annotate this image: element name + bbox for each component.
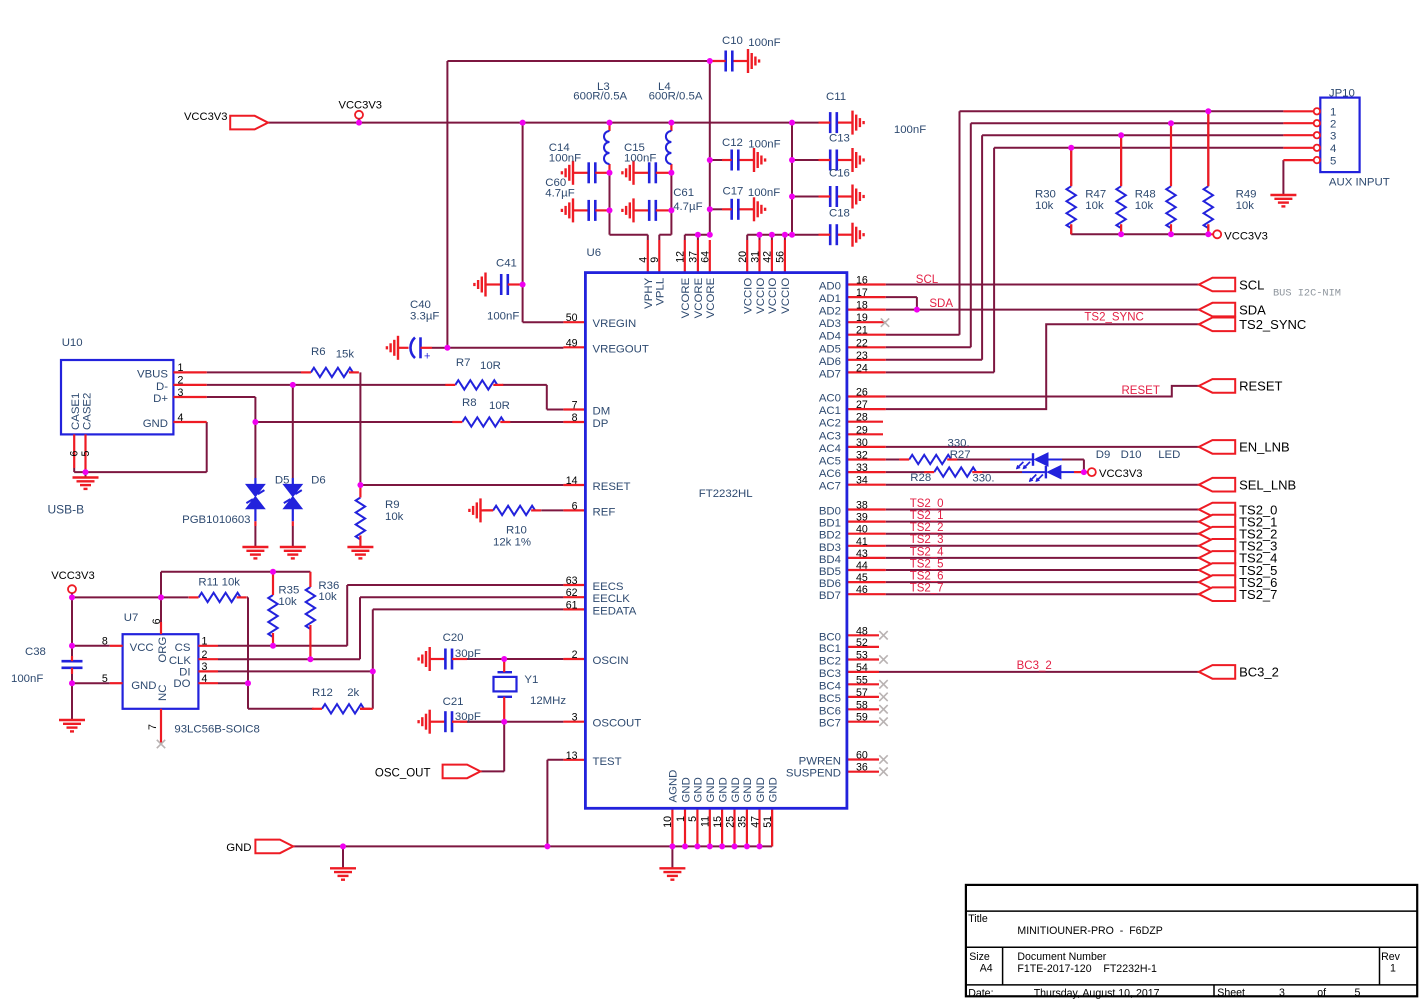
svg-text:D+: D+	[153, 393, 168, 405]
svg-text:D5: D5	[275, 475, 290, 487]
svg-text:OSCIN: OSCIN	[593, 655, 629, 667]
svg-text:36: 36	[856, 762, 868, 774]
svg-text:5: 5	[80, 451, 92, 457]
svg-text:5: 5	[1330, 155, 1336, 167]
svg-text:10k: 10k	[278, 596, 297, 608]
svg-text:GND: GND	[143, 418, 168, 430]
svg-text:100nF: 100nF	[11, 673, 43, 685]
svg-text:VPLL: VPLL	[655, 278, 667, 306]
svg-text:BD1: BD1	[819, 518, 841, 530]
svg-text:29: 29	[856, 424, 868, 436]
svg-text:SUSPEND: SUSPEND	[786, 768, 841, 780]
svg-text:41: 41	[856, 536, 868, 548]
svg-text:VCC3V3: VCC3V3	[51, 570, 95, 582]
svg-text:AC3: AC3	[819, 430, 841, 442]
svg-text:63: 63	[566, 575, 578, 587]
svg-text:DP: DP	[593, 418, 609, 430]
svg-text:BC3_2: BC3_2	[1017, 660, 1052, 672]
svg-text:C11: C11	[826, 91, 846, 103]
svg-text:2k: 2k	[347, 687, 359, 699]
svg-text:1: 1	[178, 362, 184, 374]
svg-text:R30: R30	[1035, 188, 1056, 200]
svg-text:BC5: BC5	[819, 693, 841, 705]
svg-text:39: 39	[856, 512, 868, 524]
svg-text:D6: D6	[311, 475, 326, 487]
svg-text:10: 10	[662, 816, 674, 828]
svg-text:34: 34	[856, 475, 868, 487]
svg-text:VCCIO: VCCIO	[780, 278, 792, 314]
svg-text:AD7: AD7	[819, 368, 841, 380]
svg-text:24: 24	[856, 362, 868, 374]
svg-text:16: 16	[856, 275, 868, 287]
svg-text:61: 61	[566, 599, 578, 611]
svg-text:VCORE: VCORE	[680, 277, 692, 318]
svg-text:AD2: AD2	[819, 306, 841, 318]
svg-text:NC: NC	[157, 685, 169, 701]
svg-text:R6: R6	[311, 346, 326, 358]
svg-text:BC4: BC4	[819, 680, 841, 692]
svg-text:AC5: AC5	[819, 456, 841, 468]
svg-text:AD0: AD0	[819, 281, 841, 293]
svg-text:32: 32	[856, 450, 868, 462]
svg-text:BUS I2C-NIM: BUS I2C-NIM	[1273, 287, 1341, 299]
svg-text:REF: REF	[593, 506, 616, 518]
svg-text:AD6: AD6	[819, 356, 841, 368]
svg-text:26: 26	[856, 387, 868, 399]
svg-text:37: 37	[688, 251, 700, 263]
svg-text:3: 3	[572, 712, 578, 724]
svg-text:4.7µF: 4.7µF	[545, 188, 574, 200]
svg-text:ORG: ORG	[157, 637, 169, 663]
svg-text:VCC3V3: VCC3V3	[184, 111, 228, 123]
svg-text:BD7: BD7	[819, 590, 841, 602]
svg-text:AC7: AC7	[819, 481, 841, 493]
svg-text:50: 50	[566, 312, 578, 324]
svg-text:U7: U7	[124, 612, 139, 624]
svg-text:VCORE: VCORE	[693, 277, 705, 318]
svg-text:TS2_4: TS2_4	[910, 546, 944, 558]
svg-text:12MHz: 12MHz	[530, 695, 566, 707]
svg-text:18: 18	[856, 300, 868, 312]
svg-text:Document Number: Document Number	[1017, 951, 1106, 963]
svg-text:BD2: BD2	[819, 530, 841, 542]
svg-text:10k: 10k	[1236, 200, 1255, 212]
svg-text:SDA: SDA	[929, 298, 953, 310]
svg-text:PGB1010603: PGB1010603	[182, 514, 250, 526]
svg-text:5: 5	[1355, 987, 1361, 999]
svg-text:AUX INPUT: AUX INPUT	[1329, 176, 1390, 188]
svg-text:10k: 10k	[1135, 200, 1154, 212]
svg-text:Size: Size	[969, 951, 990, 963]
svg-text:TS2_0: TS2_0	[910, 498, 944, 510]
svg-text:TS2_SYNC: TS2_SYNC	[1084, 312, 1143, 324]
svg-text:17: 17	[856, 287, 868, 299]
svg-text:VREGIN: VREGIN	[593, 318, 637, 330]
svg-text:GND: GND	[717, 777, 729, 802]
svg-text:600R/0.5A: 600R/0.5A	[649, 91, 703, 103]
svg-text:40: 40	[856, 524, 868, 536]
svg-text:FT2232HL: FT2232HL	[699, 488, 753, 500]
svg-text:AC4: AC4	[819, 443, 841, 455]
svg-text:100nF: 100nF	[549, 153, 581, 165]
svg-text:AD5: AD5	[819, 343, 841, 355]
svg-text:TS2_7: TS2_7	[1239, 587, 1277, 602]
svg-text:64: 64	[700, 251, 712, 263]
svg-text:F1TE-2017-120 FT2232H-1: F1TE-2017-120 FT2232H-1	[1017, 963, 1157, 975]
svg-text:10k: 10k	[1085, 200, 1104, 212]
svg-text:AC0: AC0	[819, 393, 841, 405]
svg-text:25: 25	[724, 816, 736, 828]
svg-text:AD1: AD1	[819, 293, 841, 305]
svg-text:USB-B: USB-B	[48, 503, 85, 517]
svg-text:VREGOUT: VREGOUT	[593, 343, 649, 355]
svg-text:100nF: 100nF	[748, 187, 780, 199]
svg-text:30: 30	[856, 437, 868, 449]
svg-text:43: 43	[856, 548, 868, 560]
svg-text:10k: 10k	[318, 591, 337, 603]
svg-text:EN_LNB: EN_LNB	[1239, 440, 1290, 455]
svg-text:CASE1: CASE1	[70, 393, 82, 430]
svg-text:23: 23	[856, 350, 868, 362]
svg-text:EECLK: EECLK	[593, 593, 631, 605]
svg-text:19: 19	[856, 312, 868, 324]
svg-text:RESET: RESET	[593, 481, 631, 493]
svg-text:1: 1	[202, 635, 208, 647]
svg-text:U10: U10	[62, 337, 83, 349]
svg-text:TS2_5: TS2_5	[910, 558, 944, 570]
svg-text:15k: 15k	[336, 348, 355, 360]
svg-text:D9: D9	[1096, 449, 1111, 461]
svg-text:3: 3	[202, 661, 208, 673]
svg-text:AD4: AD4	[819, 331, 841, 343]
svg-text:48: 48	[856, 625, 868, 637]
svg-text:21: 21	[856, 325, 868, 337]
svg-text:8: 8	[572, 412, 578, 424]
svg-text:60: 60	[856, 750, 868, 762]
svg-text:10k: 10k	[1035, 200, 1054, 212]
svg-text:C18: C18	[829, 208, 850, 220]
svg-text:56: 56	[775, 251, 787, 263]
svg-text:100nF: 100nF	[624, 153, 656, 165]
svg-text:2: 2	[572, 649, 578, 661]
svg-text:CASE2: CASE2	[81, 393, 93, 430]
svg-text:59: 59	[856, 712, 868, 724]
svg-text:C12: C12	[722, 137, 743, 149]
svg-text:5: 5	[687, 816, 699, 822]
svg-text:2: 2	[202, 649, 208, 661]
svg-text:2: 2	[1330, 119, 1336, 131]
svg-text:GND: GND	[693, 777, 705, 802]
svg-text:6: 6	[151, 618, 163, 624]
svg-text:3: 3	[1330, 131, 1336, 143]
svg-text:42: 42	[762, 251, 774, 263]
svg-text:C38: C38	[25, 646, 46, 658]
svg-text:R47: R47	[1085, 188, 1106, 200]
svg-text:TS2_7: TS2_7	[910, 583, 944, 595]
svg-text:51: 51	[762, 816, 774, 828]
svg-text:GND: GND	[226, 842, 251, 854]
svg-text:BC6: BC6	[819, 705, 841, 717]
svg-text:600R/0.5A: 600R/0.5A	[573, 91, 627, 103]
svg-text:EECS: EECS	[593, 581, 624, 593]
svg-text:LED: LED	[1158, 449, 1180, 461]
svg-text:VCCIO: VCCIO	[755, 278, 767, 314]
svg-text:9: 9	[649, 257, 661, 263]
svg-text:DO: DO	[173, 678, 190, 690]
svg-text:30pF: 30pF	[455, 711, 481, 723]
svg-text:DM: DM	[593, 406, 611, 418]
svg-text:GND: GND	[767, 777, 779, 802]
svg-text:VCCIO: VCCIO	[743, 278, 755, 314]
svg-text:C41: C41	[496, 258, 517, 270]
svg-text:C13: C13	[829, 133, 850, 145]
svg-text:100nF: 100nF	[894, 124, 926, 136]
svg-text:VPHY: VPHY	[643, 277, 655, 308]
svg-text:13: 13	[566, 750, 578, 762]
svg-text:RESET: RESET	[1122, 385, 1160, 397]
svg-text:4: 4	[638, 257, 650, 263]
svg-text:PWREN: PWREN	[799, 756, 841, 768]
svg-text:AC2: AC2	[819, 418, 841, 430]
svg-text:R12: R12	[312, 687, 333, 699]
svg-text:45: 45	[856, 572, 868, 584]
svg-text:GND: GND	[131, 680, 156, 692]
svg-text:R35: R35	[278, 585, 299, 597]
svg-text:7: 7	[572, 400, 578, 412]
svg-text:TS2_SYNC: TS2_SYNC	[1239, 317, 1306, 332]
svg-text:BC3_2: BC3_2	[1239, 665, 1279, 680]
svg-text:1: 1	[1330, 107, 1336, 119]
svg-text:12: 12	[675, 251, 687, 263]
svg-text:100nF: 100nF	[748, 139, 780, 151]
svg-text:15: 15	[712, 816, 724, 828]
svg-text:11: 11	[700, 816, 712, 827]
svg-text:VCC3V3: VCC3V3	[1224, 230, 1268, 242]
svg-text:BC0: BC0	[819, 631, 841, 643]
svg-text:BC7: BC7	[819, 718, 841, 730]
svg-text:C20: C20	[443, 632, 464, 644]
svg-text:28: 28	[856, 412, 868, 424]
svg-text:SEL_LNB: SEL_LNB	[1239, 478, 1296, 493]
svg-text:DI: DI	[179, 667, 190, 679]
svg-text:6: 6	[69, 451, 81, 457]
svg-text:VCCIO: VCCIO	[767, 278, 779, 314]
svg-text:AD3: AD3	[819, 318, 841, 330]
svg-text:VCC3V3: VCC3V3	[339, 99, 383, 111]
svg-text:EEDATA: EEDATA	[593, 605, 637, 617]
svg-text:4: 4	[202, 673, 208, 685]
svg-text:R48: R48	[1135, 188, 1156, 200]
svg-text:U6: U6	[587, 247, 602, 259]
svg-text:R7: R7	[456, 357, 471, 369]
svg-text:C16: C16	[829, 168, 850, 180]
svg-text:30pF: 30pF	[455, 648, 481, 660]
svg-text:7: 7	[147, 724, 159, 730]
svg-text:SDA: SDA	[1239, 302, 1266, 317]
svg-text:Rev: Rev	[1381, 951, 1401, 963]
svg-text:BC1: BC1	[819, 643, 841, 655]
svg-text:58: 58	[856, 699, 868, 711]
svg-text:C61: C61	[673, 187, 694, 199]
svg-text:52: 52	[856, 637, 868, 649]
svg-text:A4: A4	[980, 963, 993, 975]
svg-text:20: 20	[737, 251, 749, 263]
svg-text:AGND: AGND	[668, 770, 680, 803]
svg-text:53: 53	[856, 650, 868, 662]
svg-text:TEST: TEST	[593, 756, 622, 768]
svg-text:14: 14	[566, 475, 578, 487]
svg-text:BD5: BD5	[819, 566, 841, 578]
svg-text:TS2_6: TS2_6	[910, 571, 944, 583]
svg-text:100nF: 100nF	[487, 311, 519, 323]
svg-text:33: 33	[856, 462, 868, 474]
svg-text:AC1: AC1	[819, 405, 841, 417]
svg-text:Thursday, August 10, 2017: Thursday, August 10, 2017	[1034, 988, 1160, 1000]
svg-text:D-: D-	[156, 381, 168, 393]
svg-text:38: 38	[856, 500, 868, 512]
svg-text:+: +	[424, 351, 430, 363]
svg-text:VCC3V3: VCC3V3	[1099, 468, 1143, 480]
svg-text:R36: R36	[318, 580, 339, 592]
svg-text:MINITIOUNER-PRO - F6DZP: MINITIOUNER-PRO - F6DZP	[1017, 925, 1162, 937]
svg-text:AC6: AC6	[819, 468, 841, 480]
svg-text:10R: 10R	[480, 360, 501, 372]
svg-text:1: 1	[1390, 963, 1396, 975]
svg-text:TS2_1: TS2_1	[910, 510, 944, 522]
svg-text:35: 35	[737, 816, 749, 828]
svg-text:CS: CS	[175, 642, 191, 654]
svg-text:100nF: 100nF	[748, 37, 780, 49]
svg-text:BD4: BD4	[819, 554, 841, 566]
svg-text:SCL: SCL	[1239, 277, 1264, 292]
svg-text:54: 54	[856, 662, 868, 674]
svg-text:VCC: VCC	[130, 642, 154, 654]
svg-text:C10: C10	[722, 35, 743, 47]
svg-text:49: 49	[566, 337, 578, 349]
svg-text:GND: GND	[742, 777, 754, 802]
svg-text:3.3µF: 3.3µF	[410, 311, 439, 323]
svg-text:47: 47	[749, 816, 761, 828]
svg-text:330.: 330.	[948, 437, 970, 449]
svg-text:4.7µF: 4.7µF	[673, 201, 702, 213]
svg-text:55: 55	[856, 674, 868, 686]
svg-text:44: 44	[856, 560, 868, 572]
svg-text:Date:: Date:	[968, 988, 993, 1000]
svg-text:GND: GND	[755, 777, 767, 802]
svg-text:2: 2	[178, 375, 184, 387]
svg-text:R49: R49	[1236, 188, 1257, 200]
svg-text:Sheet: Sheet	[1217, 987, 1245, 999]
svg-text:R9: R9	[385, 499, 400, 511]
svg-text:OSCOUT: OSCOUT	[593, 718, 642, 730]
svg-text:SCL: SCL	[916, 274, 939, 286]
svg-text:OSC_OUT: OSC_OUT	[375, 768, 431, 780]
svg-text:R10: R10	[506, 525, 527, 537]
svg-text:10k: 10k	[385, 511, 404, 523]
svg-text:3: 3	[178, 387, 184, 399]
svg-text:RESET: RESET	[1239, 379, 1282, 394]
svg-text:46: 46	[856, 584, 868, 596]
svg-text:BD6: BD6	[819, 578, 841, 590]
svg-text:Y1: Y1	[524, 674, 538, 686]
svg-text:4: 4	[178, 412, 184, 424]
svg-text:D10: D10	[1121, 449, 1142, 461]
svg-text:GND: GND	[680, 777, 692, 802]
svg-text:R8: R8	[462, 397, 477, 409]
svg-text:330.: 330.	[972, 473, 994, 485]
svg-text:Title: Title	[968, 913, 988, 925]
svg-text:VCORE: VCORE	[705, 277, 717, 318]
svg-text:R27: R27	[950, 449, 971, 461]
svg-text:CLK: CLK	[169, 655, 192, 667]
svg-text:JP10: JP10	[1329, 88, 1355, 100]
svg-text:4: 4	[1330, 143, 1336, 155]
svg-text:8: 8	[102, 635, 108, 647]
svg-text:BC3: BC3	[819, 668, 841, 680]
svg-text:6: 6	[572, 500, 578, 512]
svg-text:1: 1	[675, 816, 687, 822]
svg-text:TS2_2: TS2_2	[910, 522, 944, 534]
svg-text:TS2_3: TS2_3	[910, 534, 944, 546]
svg-text:C21: C21	[443, 696, 464, 708]
svg-text:57: 57	[856, 687, 868, 699]
svg-text:VBUS: VBUS	[137, 368, 168, 380]
svg-text:C40: C40	[410, 299, 431, 311]
svg-text:of: of	[1317, 987, 1326, 999]
svg-text:BD0: BD0	[819, 506, 841, 518]
svg-text:3: 3	[1279, 987, 1285, 999]
svg-text:93LC56B-SOIC8: 93LC56B-SOIC8	[174, 723, 259, 735]
svg-text:BD3: BD3	[819, 542, 841, 554]
svg-text:GND: GND	[705, 777, 717, 802]
svg-text:R11 10k: R11 10k	[198, 577, 240, 589]
svg-text:12k 1%: 12k 1%	[493, 536, 531, 548]
svg-text:62: 62	[566, 587, 578, 599]
svg-text:22: 22	[856, 337, 868, 349]
svg-text:10R: 10R	[489, 400, 510, 412]
svg-text:C17: C17	[723, 186, 744, 198]
svg-text:31: 31	[749, 251, 761, 263]
svg-text:27: 27	[856, 399, 868, 411]
svg-text:BC2: BC2	[819, 656, 841, 668]
svg-text:GND: GND	[730, 777, 742, 802]
svg-text:R28: R28	[910, 472, 931, 484]
svg-text:5: 5	[102, 673, 108, 685]
